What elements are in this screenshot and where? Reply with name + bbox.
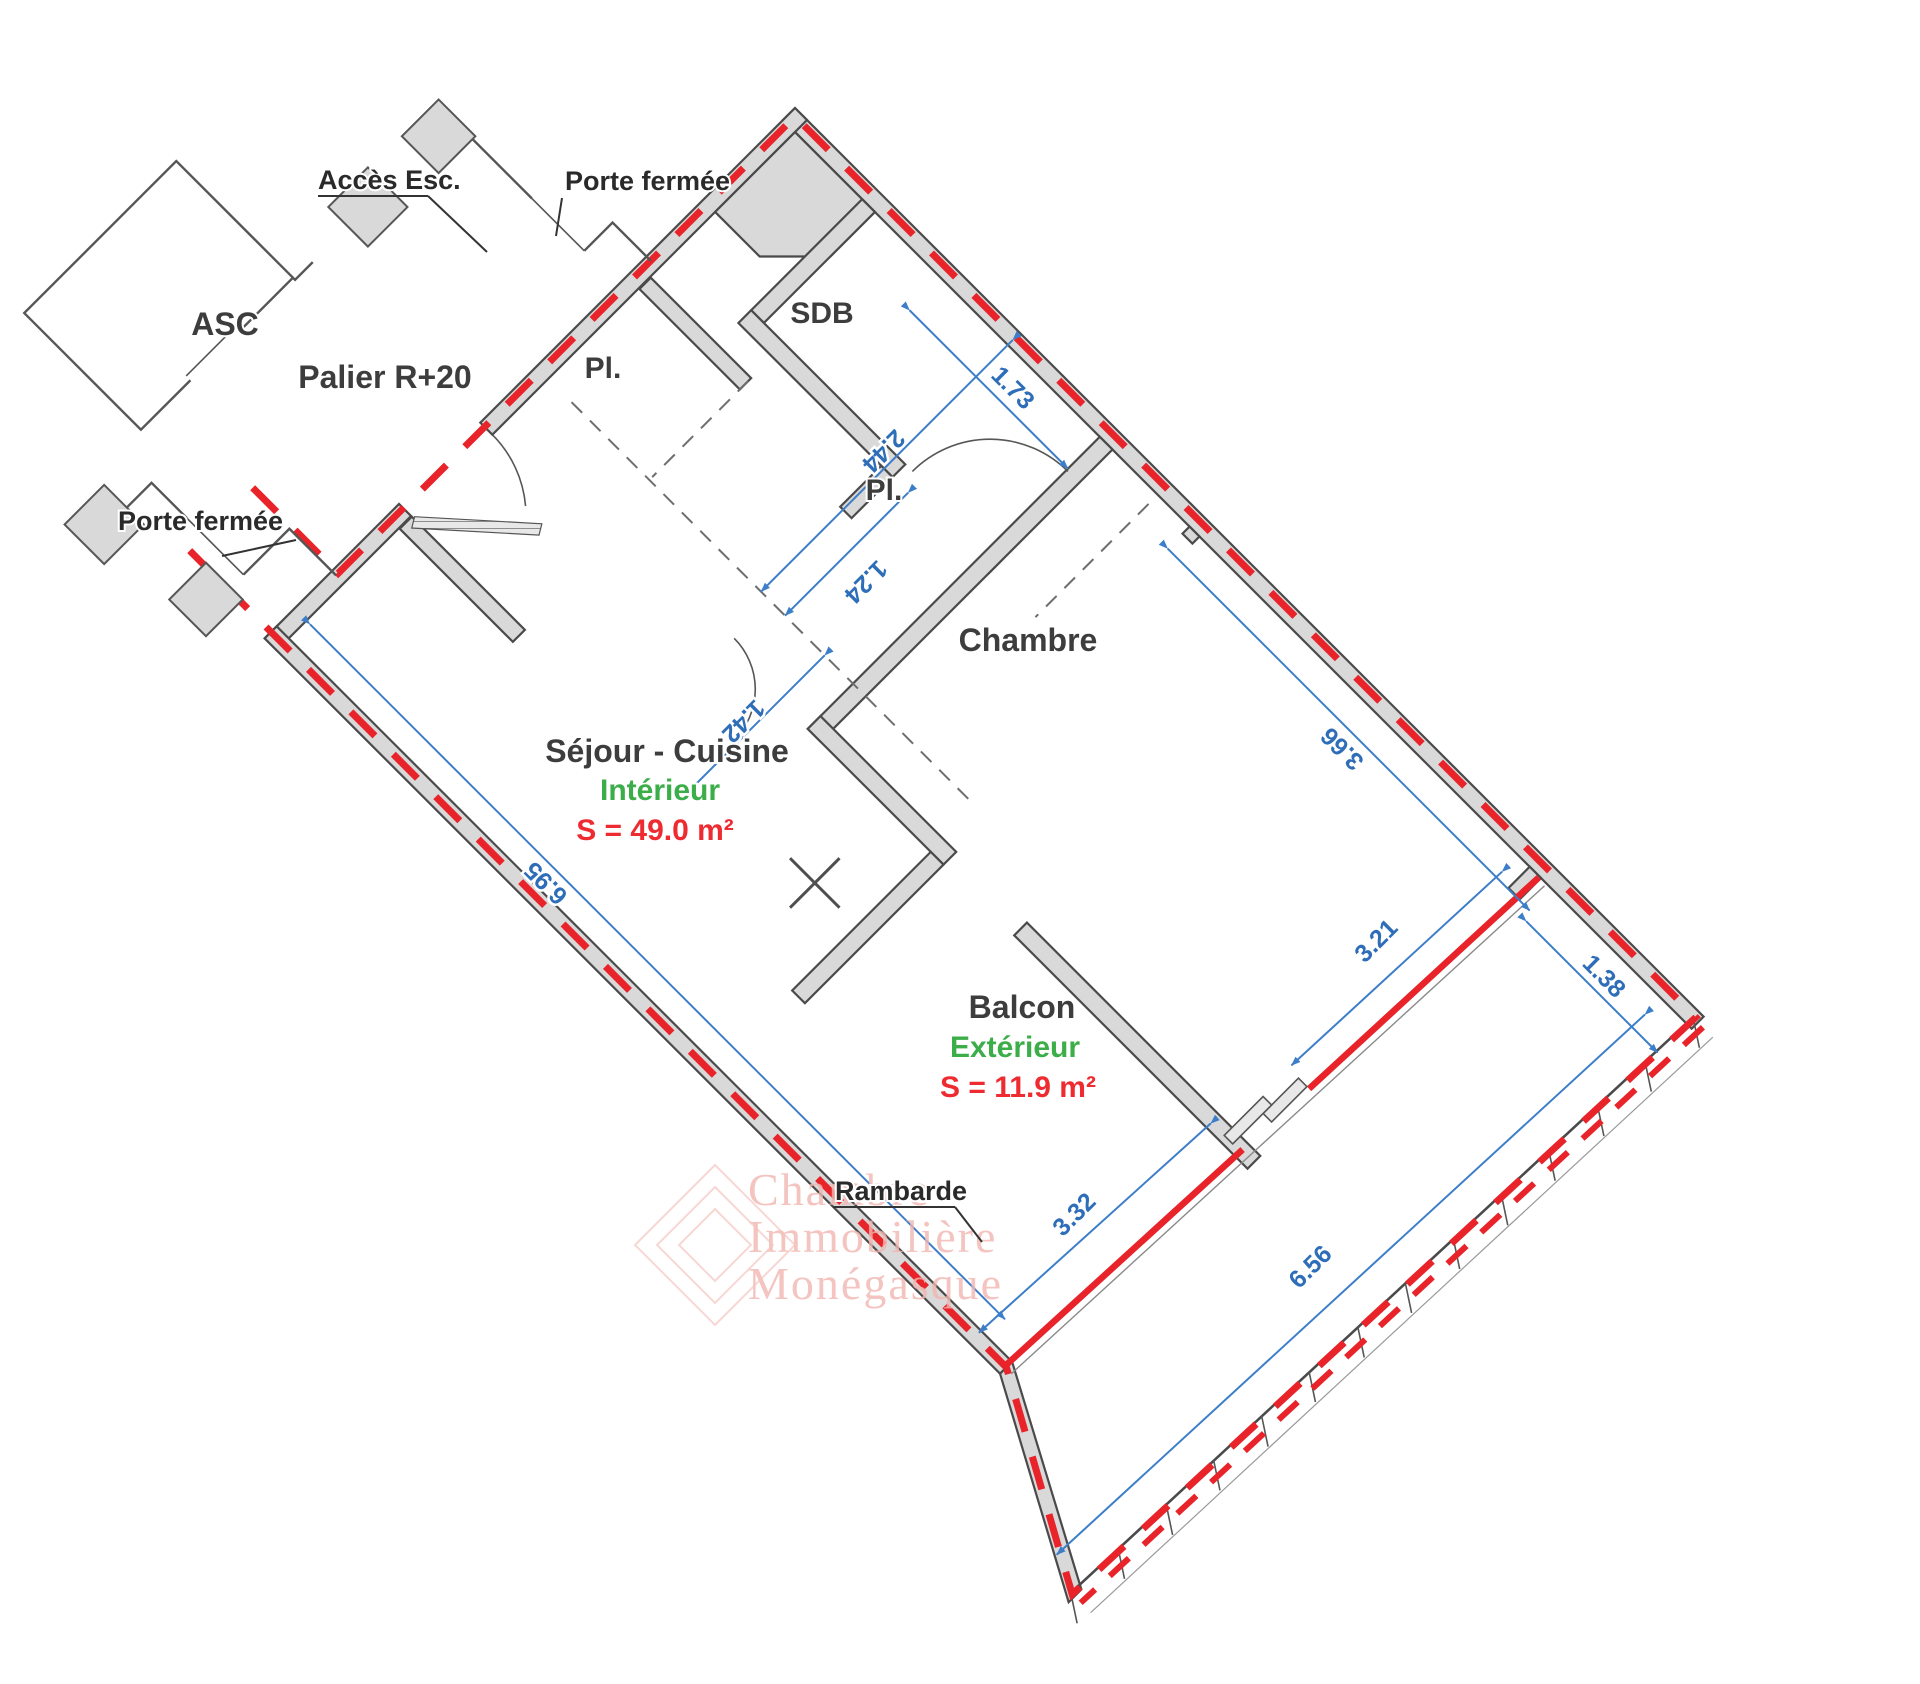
label-sdb: SDB [790, 297, 853, 330]
dim-line-1_73 [910, 310, 1068, 468]
dim-3_66: 3.66 [1315, 722, 1369, 776]
label-sejour-zone: Intérieur [600, 774, 720, 807]
label-sejour-area: S = 49.0 m² [576, 814, 734, 847]
watermark-line-2: Immobilière [748, 1211, 997, 1262]
sliding-door-leaf-a [1263, 1078, 1307, 1122]
window-wall [999, 849, 1546, 1396]
window-sejour-section [1004, 1139, 1242, 1377]
dim-3_21: 3.21 [1349, 914, 1403, 968]
column-1 [402, 100, 476, 174]
dim-line-3_21 [1291, 863, 1502, 1074]
entrance-door-leaf [408, 457, 547, 596]
label-pl-entree: Pl. [585, 352, 622, 385]
apartment-plan-rotated-group: 2.44 1.24 1.42 1.73 3.66 1.38 3.21 3.32 … [0, 0, 1718, 1648]
railing-red-dashes [1081, 1004, 1703, 1626]
label-pl-chambre: Pl. [866, 474, 903, 507]
dim-1_24: 1.24 [839, 555, 893, 609]
dim-line-1_38 [1526, 921, 1658, 1053]
wall-closet-entry-top [639, 278, 751, 390]
center-cross-marker [765, 833, 864, 932]
label-rambarde: Rambarde [835, 1176, 967, 1206]
porte-fermee-left-leader [222, 540, 296, 556]
label-chambre: Chambre [959, 622, 1098, 658]
dim-3_32: 3.32 [1047, 1188, 1101, 1242]
dimension-lines [218, 131, 1692, 1605]
acces-esc-leader [428, 196, 487, 252]
label-balcon: Balcon [969, 989, 1076, 1025]
label-sejour: Séjour - Cuisine [545, 733, 789, 769]
dim-line-3_32 [979, 1112, 1211, 1344]
dim-line-6_56 [1057, 990, 1645, 1578]
label-porte-fermee-left: Porte fermée [118, 506, 283, 536]
dim-line-3_66 [1168, 549, 1530, 911]
wall-entry-stub [400, 517, 525, 642]
porte-fermee-top-leader [556, 198, 562, 236]
column-3 [169, 563, 243, 637]
palier-labels: ASC Palier R+20 Accès Esc. Porte fermée … [118, 165, 730, 556]
label-acces-esc: Accès Esc. [318, 165, 461, 195]
entrance-door-arc [473, 435, 544, 506]
label-palier: Palier R+20 [298, 359, 471, 395]
sliding-door-leaf-b [1224, 1097, 1271, 1144]
floor-plan-page: 2.44 1.24 1.42 1.73 3.66 1.38 3.21 3.32 … [0, 0, 1920, 1684]
label-balcon-area: S = 11.9 m² [940, 1071, 1096, 1104]
watermark-line-3: Monégasque [748, 1258, 1003, 1309]
wall-chambre-bottom-a [808, 716, 956, 864]
closet-entry-front-dashed [652, 381, 748, 477]
closet-chambre-front-dashed [1035, 504, 1148, 617]
floor-plan-svg: 2.44 1.24 1.42 1.73 3.66 1.38 3.21 3.32 … [0, 0, 1920, 1684]
dim-6_56: 6.56 [1283, 1240, 1337, 1294]
apartment-walls [185, 108, 1704, 1627]
wall-kitchen-stub [792, 852, 943, 1003]
label-asc: ASC [191, 306, 259, 342]
label-porte-fermee-top: Porte fermée [565, 166, 730, 196]
label-balcon-zone: Extérieur [950, 1031, 1080, 1064]
window-chambre-section [1309, 868, 1539, 1098]
railing [1059, 994, 1713, 1648]
